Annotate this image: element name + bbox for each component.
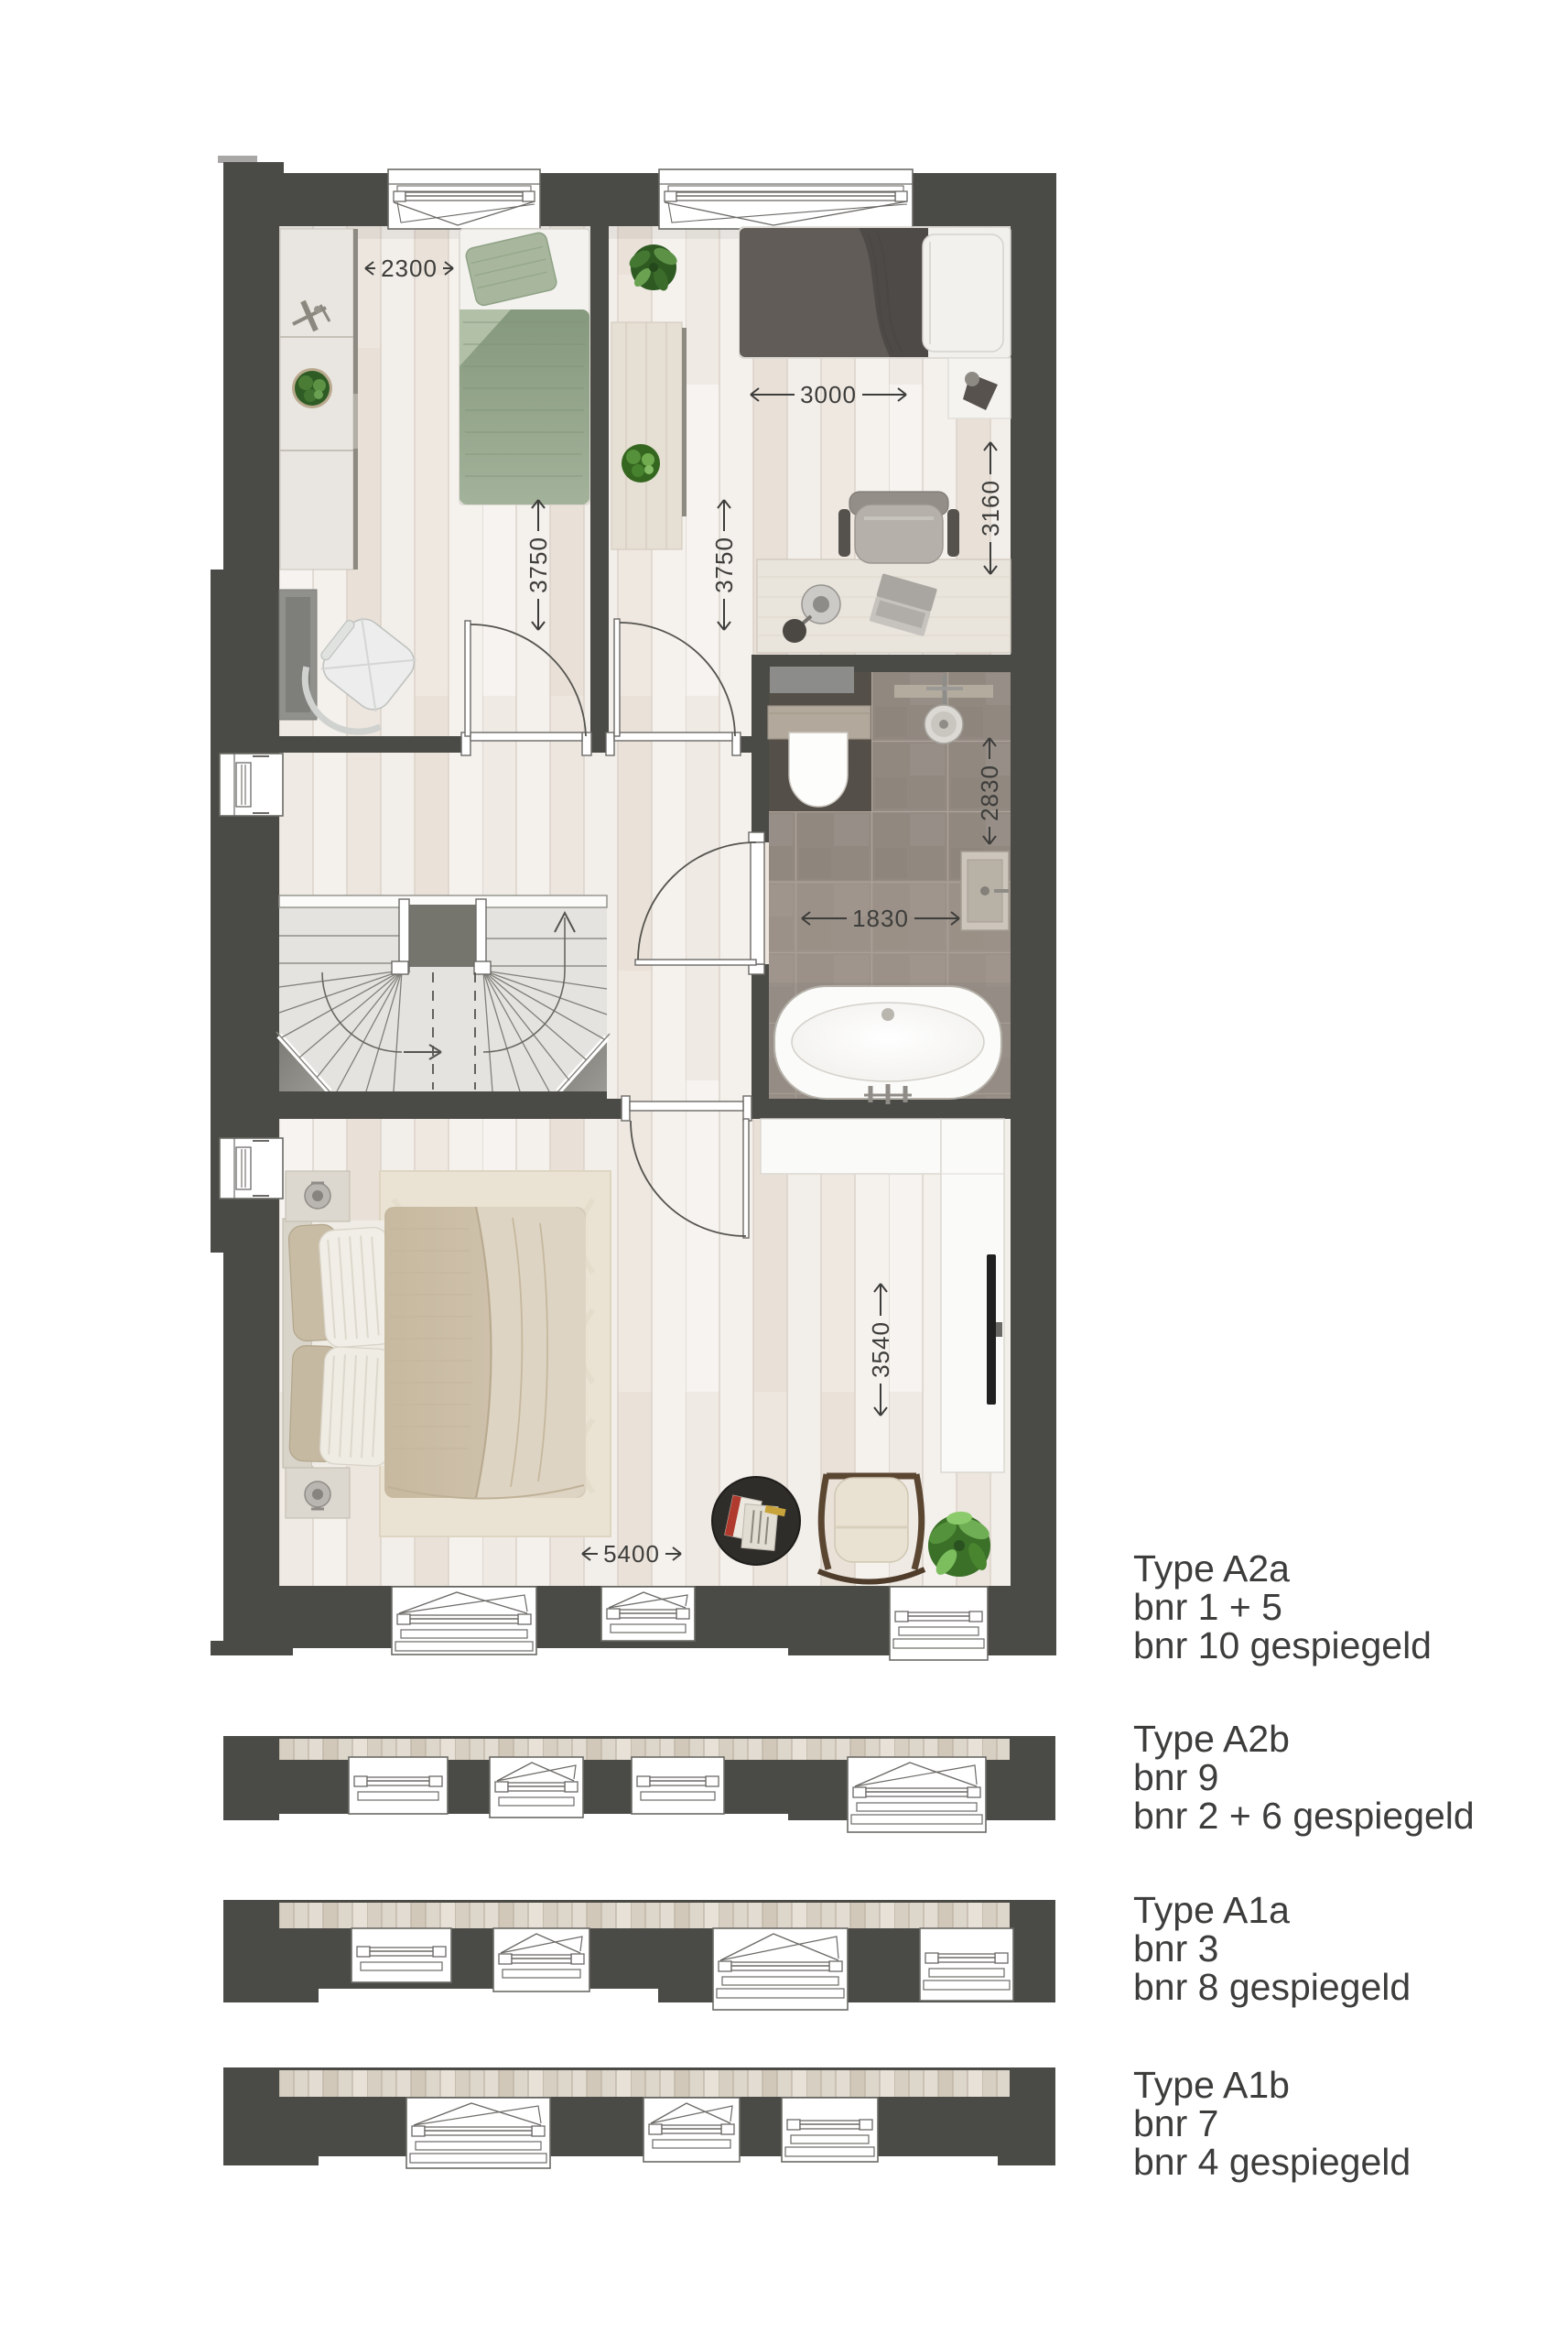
svg-text:Type A1a: Type A1a bbox=[1133, 1889, 1290, 1931]
svg-text:3750: 3750 bbox=[710, 537, 738, 593]
svg-text:3540: 3540 bbox=[867, 1321, 894, 1378]
svg-text:1830: 1830 bbox=[852, 905, 909, 932]
svg-text:bnr 7: bnr 7 bbox=[1133, 2102, 1218, 2144]
svg-text:3160: 3160 bbox=[977, 480, 1004, 537]
svg-text:Type A2a: Type A2a bbox=[1133, 1547, 1290, 1590]
svg-text:bnr 9: bnr 9 bbox=[1133, 1756, 1218, 1798]
svg-text:bnr 2 + 6 gespiegeld: bnr 2 + 6 gespiegeld bbox=[1133, 1795, 1475, 1837]
svg-text:5400: 5400 bbox=[603, 1540, 660, 1568]
svg-text:bnr 3: bnr 3 bbox=[1133, 1927, 1218, 1970]
svg-text:bnr 1 + 5: bnr 1 + 5 bbox=[1133, 1586, 1282, 1628]
svg-text:Type A1b: Type A1b bbox=[1133, 2064, 1290, 2106]
svg-text:3000: 3000 bbox=[800, 381, 857, 408]
svg-text:2300: 2300 bbox=[381, 255, 438, 282]
svg-text:bnr 10 gespiegeld: bnr 10 gespiegeld bbox=[1133, 1624, 1432, 1666]
svg-text:Type A2b: Type A2b bbox=[1133, 1718, 1290, 1760]
svg-text:bnr 8 gespiegeld: bnr 8 gespiegeld bbox=[1133, 1966, 1411, 2008]
svg-text:2830: 2830 bbox=[976, 765, 1003, 821]
svg-text:bnr 4 gespiegeld: bnr 4 gespiegeld bbox=[1133, 2141, 1411, 2183]
svg-text:3750: 3750 bbox=[524, 537, 552, 593]
